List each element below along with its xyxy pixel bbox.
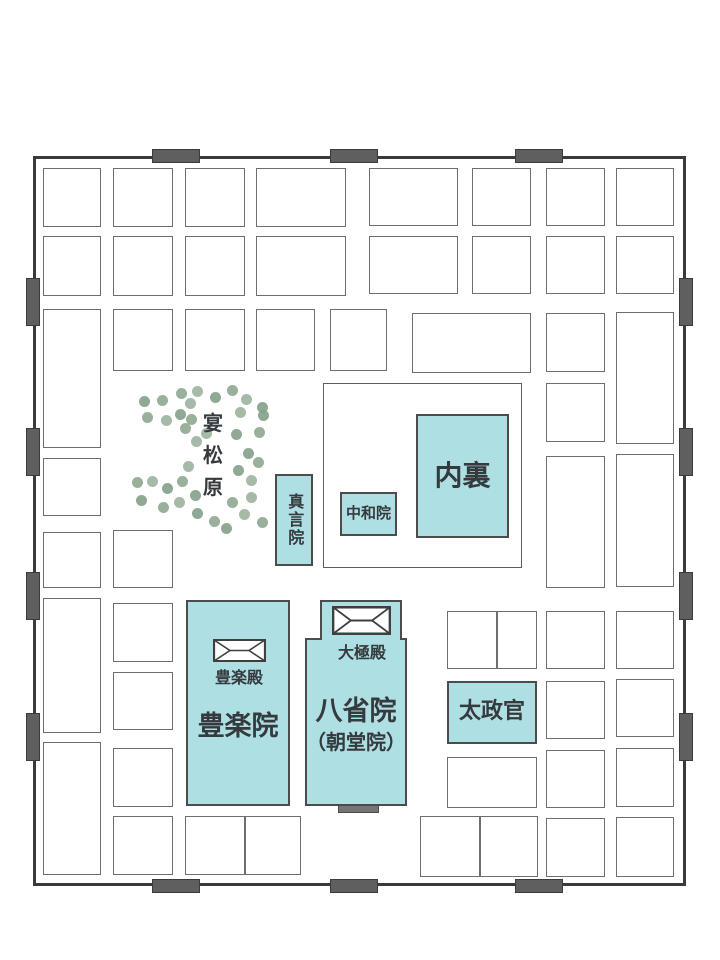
- wall-gate-west: [26, 428, 40, 476]
- dairi-label: 内裏: [396, 455, 529, 497]
- city-block: [616, 236, 674, 294]
- city-block: [113, 603, 173, 662]
- city-block: [185, 816, 301, 875]
- burakuin-building: [186, 600, 290, 806]
- wall-gate-west: [26, 278, 40, 326]
- pine-tree-dot: [227, 385, 238, 396]
- chuwain-label: 中和院: [320, 503, 417, 526]
- city-block: [43, 309, 101, 448]
- city-block: [546, 456, 605, 588]
- city-block: [616, 312, 674, 444]
- hasshoin-south-gate: [338, 805, 379, 813]
- pine-tree-dot: [183, 461, 194, 472]
- wall-gate-north: [152, 149, 200, 163]
- city-block: [412, 313, 531, 373]
- city-block: [256, 168, 346, 227]
- wall-gate-north: [515, 149, 563, 163]
- pine-tree-dot: [239, 509, 250, 520]
- hasshoin-hall-label: 大極殿: [317, 642, 407, 664]
- block-divider: [244, 817, 246, 874]
- pine-tree-dot: [136, 495, 147, 506]
- pine-tree-dot: [158, 502, 169, 513]
- pine-grove-char: 松: [203, 444, 223, 467]
- wall-gate-south: [330, 879, 378, 893]
- pine-tree-dot: [176, 388, 187, 399]
- pine-tree-dot: [142, 412, 153, 423]
- wall-gate-south: [515, 879, 563, 893]
- city-block: [113, 236, 173, 296]
- city-block: [185, 236, 245, 296]
- wall-gate-west: [26, 572, 40, 620]
- pine-tree-dot: [221, 523, 232, 534]
- wall-gate-east: [679, 278, 693, 326]
- pine-tree-dot: [209, 516, 220, 527]
- hasshoin-label: 八省院: [285, 692, 427, 733]
- pine-grove-char: 原: [203, 476, 223, 499]
- pine-tree-dot: [147, 476, 158, 487]
- city-block: [616, 748, 674, 807]
- city-block: [447, 611, 537, 669]
- daijokan-label: 太政官: [427, 696, 557, 729]
- pine-tree-dot: [243, 448, 254, 459]
- pine-tree-dot: [180, 423, 191, 434]
- wall-gate-south: [152, 879, 200, 893]
- wall-gate-east: [679, 572, 693, 620]
- pine-tree-dot: [246, 475, 257, 486]
- pine-tree-dot: [210, 392, 221, 403]
- hasshoin-hall-roof-icon: [332, 606, 391, 635]
- pine-tree-dot: [162, 483, 173, 494]
- city-block: [472, 236, 531, 294]
- pine-tree-dot: [157, 395, 168, 406]
- city-block: [546, 313, 605, 372]
- city-block: [113, 672, 173, 730]
- city-block: [185, 309, 245, 371]
- city-block: [43, 168, 101, 227]
- city-block: [113, 530, 173, 588]
- pine-tree-dot: [253, 457, 264, 468]
- block-divider: [496, 612, 498, 668]
- pine-tree-dot: [175, 409, 186, 420]
- city-block: [420, 816, 538, 877]
- burakuin-hall-roof-icon: [213, 639, 266, 662]
- pine-grove-char: 宴: [203, 412, 223, 435]
- palace-map: 内裏中和院真言院豊楽殿豊楽院大極殿八省院（朝堂院）太政官宴松原: [0, 0, 720, 960]
- city-block: [616, 611, 674, 669]
- city-block: [472, 168, 531, 226]
- pine-tree-dot: [132, 477, 143, 488]
- pine-tree-dot: [254, 427, 265, 438]
- pine-tree-dot: [185, 398, 196, 409]
- wall-gate-east: [679, 713, 693, 761]
- pine-tree-dot: [241, 394, 252, 405]
- city-block: [616, 168, 674, 226]
- city-block: [43, 236, 101, 296]
- city-block: [113, 816, 173, 875]
- city-block: [369, 236, 458, 294]
- city-block: [256, 309, 315, 371]
- wall-gate-west: [26, 713, 40, 761]
- burakuin-hall-roof-icon-glyph: [213, 639, 266, 662]
- hasshoin-hall-roof-icon-glyph: [332, 606, 391, 635]
- city-block: [546, 611, 605, 669]
- city-block: [113, 168, 173, 227]
- pine-tree-dot: [227, 497, 238, 508]
- city-block: [185, 168, 245, 227]
- pine-tree-dot: [246, 492, 257, 503]
- pine-tree-dot: [174, 497, 185, 508]
- city-block: [616, 679, 674, 737]
- pine-tree-dot: [258, 410, 269, 421]
- city-block: [256, 236, 346, 296]
- city-block: [546, 168, 605, 226]
- city-block: [616, 817, 674, 877]
- city-block: [546, 750, 605, 808]
- pine-tree-dot: [192, 508, 203, 519]
- city-block: [113, 748, 173, 807]
- city-block: [43, 742, 101, 875]
- wall-gate-east: [679, 428, 693, 476]
- city-block: [546, 818, 605, 877]
- city-block: [447, 757, 537, 808]
- burakuin-hall-label: 豊楽殿: [194, 667, 284, 689]
- city-block: [546, 383, 605, 442]
- pine-tree-dot: [177, 476, 188, 487]
- pine-tree-dot: [257, 517, 268, 528]
- city-block: [43, 598, 101, 733]
- pine-tree-dot: [235, 407, 246, 418]
- pine-tree-dot: [161, 415, 172, 426]
- city-block: [43, 532, 101, 588]
- pine-grove-label: 宴松原: [199, 412, 227, 499]
- pine-tree-dot: [233, 465, 244, 476]
- wall-gate-north: [330, 149, 378, 163]
- pine-tree-dot: [139, 396, 150, 407]
- city-block: [43, 458, 101, 516]
- pine-tree-dot: [231, 429, 242, 440]
- pine-tree-dot: [192, 386, 203, 397]
- city-block: [330, 309, 387, 371]
- city-block: [113, 309, 173, 371]
- shingonin-label: 真言院: [280, 476, 308, 564]
- city-block: [546, 236, 605, 294]
- block-divider: [479, 817, 481, 876]
- city-block: [369, 168, 458, 226]
- city-block: [616, 454, 674, 587]
- hasshoin-sub-label: （朝堂院）: [280, 728, 432, 757]
